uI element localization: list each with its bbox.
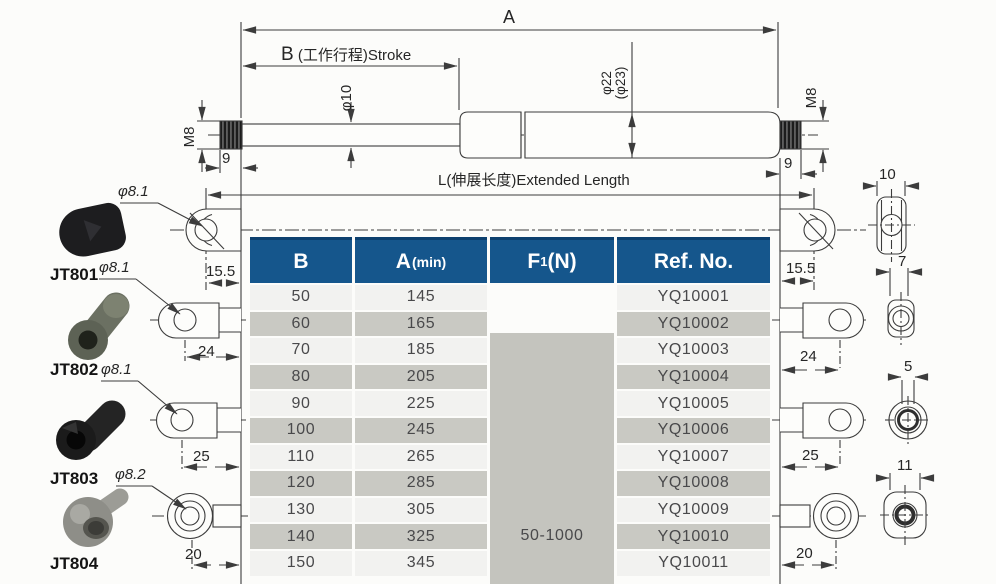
force-range-value: 50-1000 <box>490 527 614 545</box>
gas-spring-cylinder <box>525 112 780 158</box>
cell-ref-no: YQ10005 <box>617 391 770 416</box>
header-f1n: F1(N) <box>490 237 614 283</box>
phi-label-4: φ8.2 <box>115 467 146 483</box>
dim-label-7-top: 7 <box>898 254 906 270</box>
force-range-cell <box>490 333 614 584</box>
dim-label-15.5-right: 15.5 <box>786 261 815 277</box>
dim-label-24-right: 24 <box>800 349 817 365</box>
table-row: 50 145 YQ10001 <box>250 285 770 310</box>
fitting-drawing-ball-4-right <box>780 505 810 527</box>
cell-b: 140 <box>250 524 352 549</box>
cell-ref-no: YQ10002 <box>617 312 770 337</box>
thread-left <box>220 121 242 149</box>
dim-label-m8-right: M8 <box>797 86 827 110</box>
cell-ref-no: YQ10001 <box>617 285 770 310</box>
dim-label-10-top: 10 <box>879 167 896 183</box>
cell-a-min: 185 <box>355 338 487 363</box>
cell-ref-no: YQ10010 <box>617 524 770 549</box>
phi-label-2: φ8.1 <box>99 260 130 276</box>
thread-right <box>780 121 801 149</box>
spec-table: B A(min) F1(N) Ref. No. 50 145 YQ10001 6… <box>250 237 770 578</box>
cell-a-min: 285 <box>355 471 487 496</box>
cell-b: 70 <box>250 338 352 363</box>
dim-label-B: B <box>281 44 294 65</box>
dim-label-9-left: 9 <box>222 151 230 167</box>
dim-label-24-left: 24 <box>198 344 215 360</box>
cell-a-min: 245 <box>355 418 487 443</box>
dim-label-phi23: (φ23) <box>614 67 628 100</box>
dim-label-5-top: 5 <box>904 359 912 375</box>
cell-b: 60 <box>250 312 352 337</box>
cell-a-min: 225 <box>355 391 487 416</box>
jt803-label: JT803 <box>50 470 98 488</box>
dim-label-phi10: φ10 <box>331 80 363 116</box>
right-top-views <box>863 181 934 545</box>
cell-b: 150 <box>250 551 352 576</box>
cell-b: 130 <box>250 498 352 523</box>
phi-label-3: φ8.1 <box>101 362 132 378</box>
dim-label-A: A <box>503 8 515 27</box>
dim-label-stroke: (工作行程)Stroke <box>298 47 411 64</box>
header-b: B <box>250 237 352 283</box>
header-f-rest: (N) <box>547 250 576 274</box>
cell-b: 80 <box>250 365 352 390</box>
cell-b: 110 <box>250 445 352 470</box>
gas-spring-collar <box>460 112 521 158</box>
cell-a-min: 345 <box>355 551 487 576</box>
dim-label-25-left: 25 <box>193 449 210 465</box>
header-a-sub: (min) <box>412 254 446 270</box>
cell-ref-no: YQ10008 <box>617 471 770 496</box>
fitting-drawing-eyelet-3-left <box>157 403 242 438</box>
cell-a-min: 265 <box>355 445 487 470</box>
cell-f1n <box>490 285 614 310</box>
header-f-main: F <box>527 250 540 274</box>
dim-label-20-right: 20 <box>796 546 813 562</box>
cell-ref-no: YQ10004 <box>617 365 770 390</box>
dim-label-m8-left: M8 <box>175 125 205 149</box>
dim-label-phi22: φ22 <box>600 71 614 95</box>
header-ref-no: Ref. No. <box>617 237 770 283</box>
spec-table-header: B A(min) F1(N) Ref. No. <box>250 237 770 283</box>
fitting-drawing-ball-4-left <box>213 505 241 527</box>
datasheet-page: A B (工作行程)Stroke L(伸展长度)Extended Length … <box>0 0 996 584</box>
cell-b: 90 <box>250 391 352 416</box>
phi-label-1: φ8.1 <box>118 184 149 200</box>
dim-label-extended-length: L(伸展长度)Extended Length <box>438 173 630 189</box>
header-a-min: A(min) <box>355 237 487 283</box>
dim-label-phi22-23: φ22 (φ23) <box>591 63 637 103</box>
gas-spring-rod <box>242 124 460 146</box>
dim-label-15.5-left: 15.5 <box>206 264 235 280</box>
cell-ref-no: YQ10007 <box>617 445 770 470</box>
cell-b: 100 <box>250 418 352 443</box>
spec-table-body: 50 145 YQ10001 60 165 YQ10002 70 185 YQ1… <box>250 285 770 576</box>
photo-jt804 <box>63 497 120 547</box>
cell-b: 50 <box>250 285 352 310</box>
cell-a-min: 165 <box>355 312 487 337</box>
dim-label-20-left: 20 <box>185 547 202 563</box>
cell-ref-no: YQ10006 <box>617 418 770 443</box>
header-a-main: A <box>396 250 411 274</box>
cell-a-min: 145 <box>355 285 487 310</box>
photo-jt801 <box>55 200 129 260</box>
dim-label-25-right: 25 <box>802 448 819 464</box>
cell-ref-no: YQ10003 <box>617 338 770 363</box>
dim-label-9-right: 9 <box>784 156 792 172</box>
dim-label-B-stroke: B (工作行程)Stroke <box>281 45 411 65</box>
cell-b: 120 <box>250 471 352 496</box>
jt802-label: JT802 <box>50 361 98 379</box>
cell-ref-no: YQ10011 <box>617 551 770 576</box>
jt804-label: JT804 <box>50 555 98 573</box>
photo-jt803 <box>56 414 112 460</box>
fitting-drawing-eyelet-2-left <box>159 303 242 338</box>
cell-a-min: 205 <box>355 365 487 390</box>
cell-ref-no: YQ10009 <box>617 498 770 523</box>
photo-jt802 <box>68 294 129 360</box>
cell-a-min: 305 <box>355 498 487 523</box>
dim-label-11-top: 11 <box>897 458 913 474</box>
jt801-label: JT801 <box>50 266 98 284</box>
cell-a-min: 325 <box>355 524 487 549</box>
